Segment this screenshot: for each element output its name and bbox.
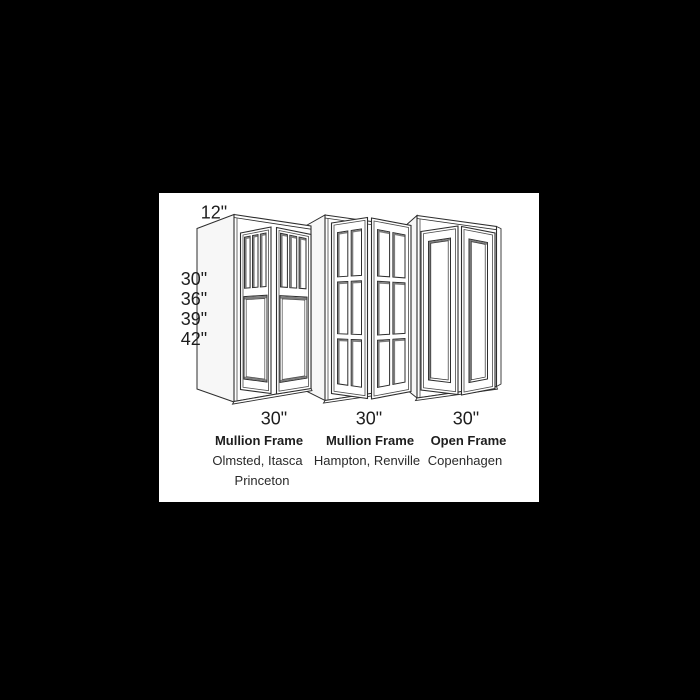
height-dimension-label: 39" [181,309,207,329]
cabinet-diagram: 12" 30" 36" 39" 42" 30" Mullion Frame Ol… [0,0,700,700]
width-dimension-label: 30" [453,409,479,429]
cabinet-illustrations [197,215,501,405]
style-names-label: Princeton [235,473,290,488]
depth-dimension-label: 12" [201,203,227,223]
frame-type-label: Mullion Frame [215,433,303,448]
style-names-label: Olmsted, Itasca [212,453,303,468]
height-dimension-label: 42" [181,329,207,349]
style-names-label: Hampton, Renville [314,453,420,468]
height-dimension-labels: 30" 36" 39" 42" [181,269,207,349]
height-dimension-label: 30" [181,269,207,289]
width-dimension-label: 30" [356,409,382,429]
cabinet-illustration-3 [404,216,501,401]
frame-type-label: Mullion Frame [326,433,414,448]
screenshot-stage: 12" 30" 36" 39" 42" 30" Mullion Frame Ol… [0,0,700,700]
style-names-label: Copenhagen [428,453,502,468]
width-dimension-label: 30" [261,409,287,429]
cabinet-illustration-2 [301,215,411,403]
height-dimension-label: 36" [181,289,207,309]
frame-type-label: Open Frame [431,433,507,448]
cabinet-illustration-1 [197,215,312,405]
